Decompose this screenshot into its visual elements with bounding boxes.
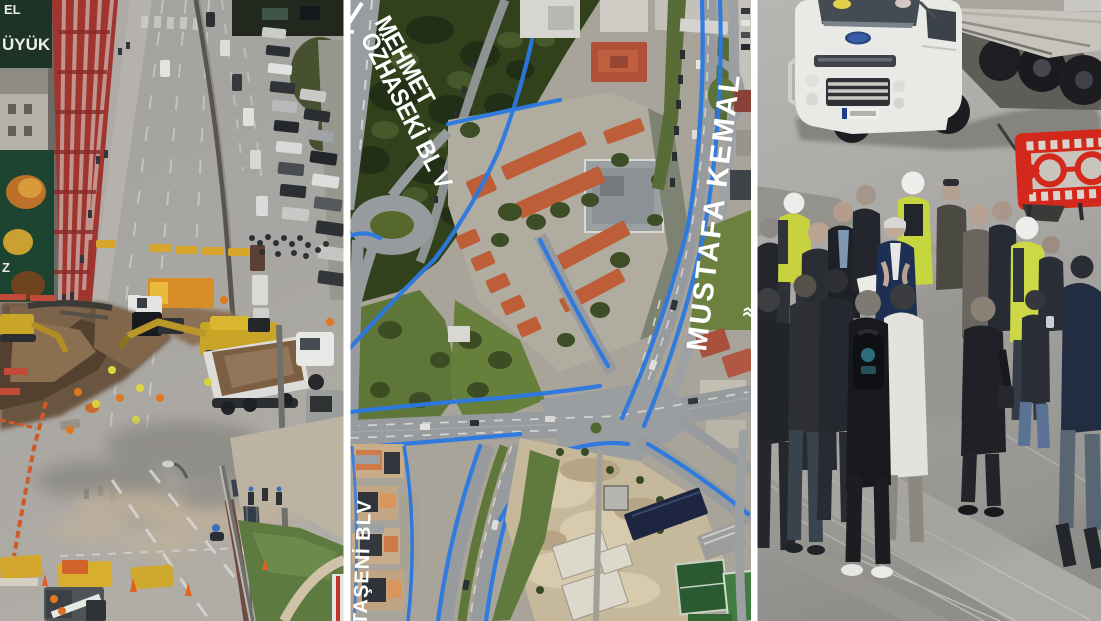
svg-text:ÜYÜK: ÜYÜK xyxy=(2,35,51,54)
svg-text:Z: Z xyxy=(2,260,10,275)
svg-text:EL: EL xyxy=(4,2,21,17)
